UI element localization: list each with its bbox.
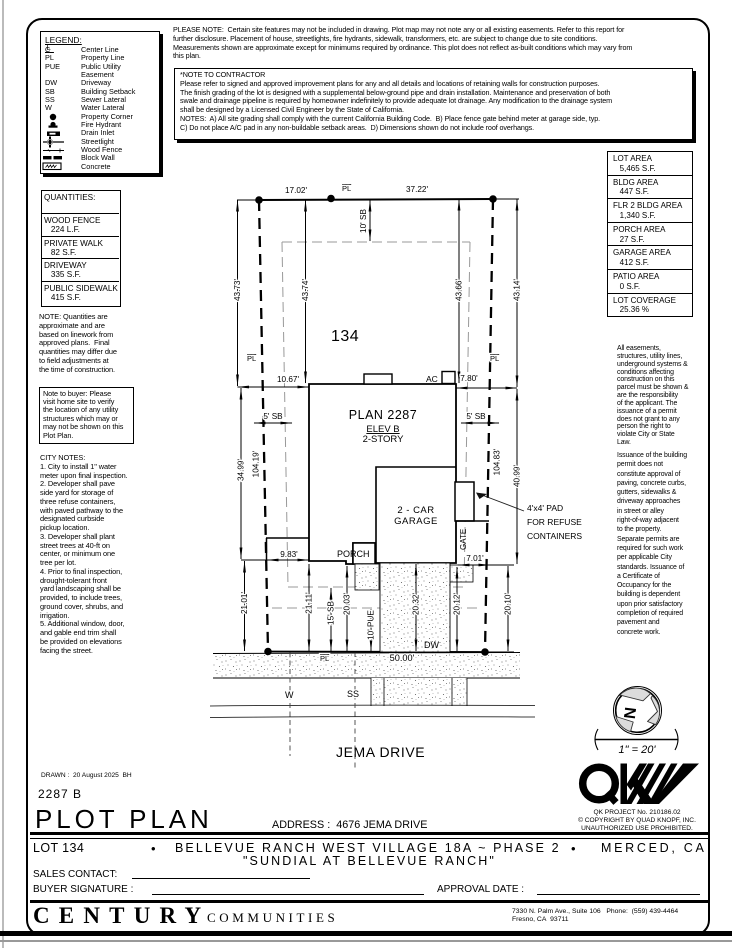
svg-text:2-STORY: 2-STORY <box>363 434 404 445</box>
svg-text:20.12': 20.12' <box>453 593 462 615</box>
svg-text:104.83': 104.83' <box>493 448 502 475</box>
svg-text:PL: PL <box>490 354 499 363</box>
svg-text:2 - CAR: 2 - CAR <box>397 505 434 516</box>
svg-text:PLAN 2287: PLAN 2287 <box>349 408 417 422</box>
svg-text:DW: DW <box>424 640 439 650</box>
svg-text:7.01': 7.01' <box>466 554 484 563</box>
svg-text:AC: AC <box>426 374 438 384</box>
svg-text:10.67': 10.67' <box>277 375 299 384</box>
svg-text:21.11': 21.11' <box>305 592 314 614</box>
svg-text:CONTAINERS: CONTAINERS <box>527 531 582 541</box>
svg-text:9.83': 9.83' <box>280 550 298 559</box>
svg-text:PL: PL <box>342 184 351 193</box>
svg-text:104.19': 104.19' <box>252 450 261 477</box>
svg-text:20.32': 20.32' <box>412 593 421 615</box>
svg-text:37.22': 37.22' <box>406 185 428 194</box>
svg-text:PL: PL <box>247 354 256 363</box>
svg-text:134: 134 <box>331 328 359 345</box>
svg-text:5' SB: 5' SB <box>466 412 486 421</box>
svg-text:GATE: GATE <box>459 529 468 550</box>
svg-text:JEMA DRIVE: JEMA DRIVE <box>336 744 425 760</box>
svg-text:40.99': 40.99' <box>513 465 522 487</box>
svg-text:GARAGE: GARAGE <box>394 516 438 527</box>
svg-text:50.00': 50.00' <box>390 653 415 663</box>
svg-text:UNAUTHORIZED USE PROHIBITED.: UNAUTHORIZED USE PROHIBITED. <box>581 825 693 832</box>
svg-text:43.74': 43.74' <box>301 279 310 301</box>
svg-text:20.10': 20.10' <box>504 593 513 615</box>
svg-text:PORCH: PORCH <box>337 549 370 559</box>
svg-text:43.14': 43.14' <box>513 279 522 301</box>
svg-text:FOR REFUSE: FOR REFUSE <box>527 517 582 527</box>
svg-text:5' SB: 5' SB <box>263 412 283 421</box>
svg-text:34.99': 34.99' <box>237 459 246 481</box>
svg-text:17.02': 17.02' <box>285 186 307 195</box>
svg-text:1" = 20': 1" = 20' <box>619 744 657 756</box>
svg-text:PL: PL <box>320 654 329 663</box>
svg-text:SS: SS <box>347 689 359 699</box>
svg-text:10' PUE: 10' PUE <box>367 610 376 640</box>
svg-text:© COPYRIGHT BY QUAD KNOPF, INC: © COPYRIGHT BY QUAD KNOPF, INC. <box>578 816 696 824</box>
svg-text:4'x4' PAD: 4'x4' PAD <box>527 503 563 513</box>
svg-text:43.73': 43.73' <box>233 279 242 301</box>
svg-text:7.80': 7.80' <box>460 374 478 383</box>
svg-text:20.03': 20.03' <box>343 593 352 615</box>
svg-text:43.66': 43.66' <box>455 279 464 301</box>
svg-text:15' SB: 15' SB <box>327 601 336 625</box>
svg-text:10' SB: 10' SB <box>359 209 368 233</box>
svg-text:21.01': 21.01' <box>240 592 249 614</box>
svg-text:W: W <box>285 690 294 700</box>
svg-text:N: N <box>620 706 638 720</box>
svg-text:QK PROJECT No. 210186.02: QK PROJECT No. 210186.02 <box>593 809 680 816</box>
